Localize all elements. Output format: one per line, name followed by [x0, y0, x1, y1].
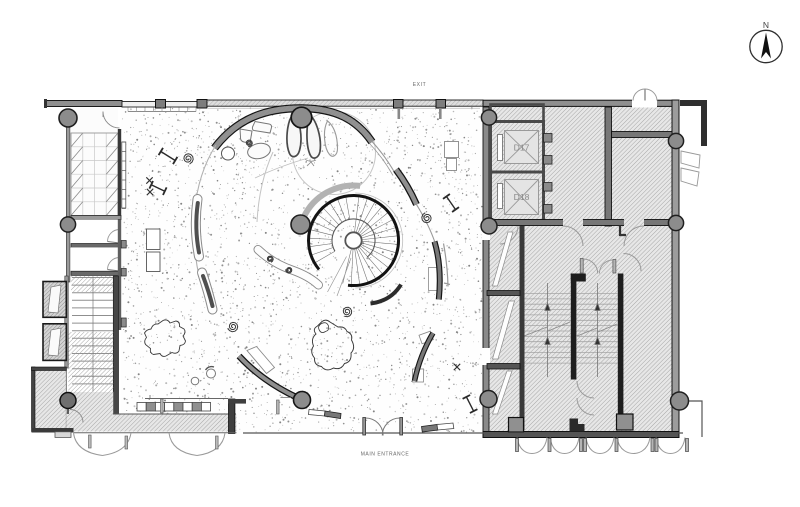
svg-text:D18: D18	[514, 192, 530, 202]
svg-text:EXIT: EXIT	[413, 82, 427, 88]
svg-text:MAIN ENTRANCE: MAIN ENTRANCE	[361, 452, 410, 458]
svg-text:N: N	[763, 20, 769, 30]
svg-text:D17: D17	[514, 143, 530, 153]
